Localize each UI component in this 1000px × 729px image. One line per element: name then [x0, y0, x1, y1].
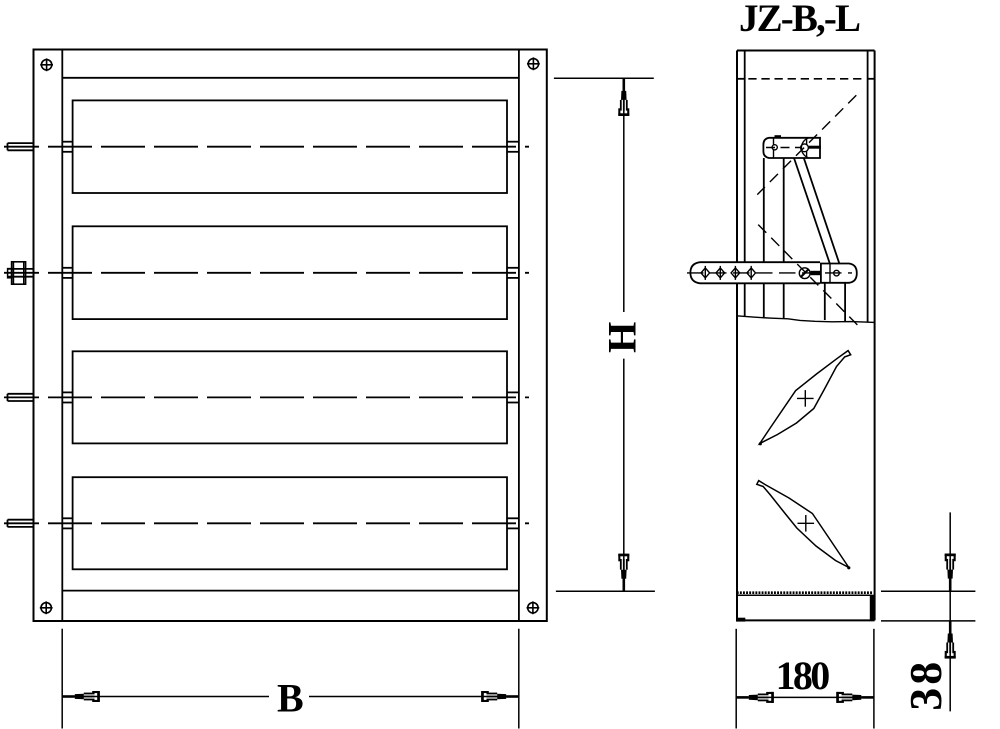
svg-text:38: 38 — [900, 662, 951, 711]
svg-text:180: 180 — [776, 653, 831, 698]
svg-text:H: H — [599, 322, 644, 353]
svg-text:B: B — [277, 676, 304, 721]
svg-text:JZ-B,-L: JZ-B,-L — [739, 0, 861, 40]
